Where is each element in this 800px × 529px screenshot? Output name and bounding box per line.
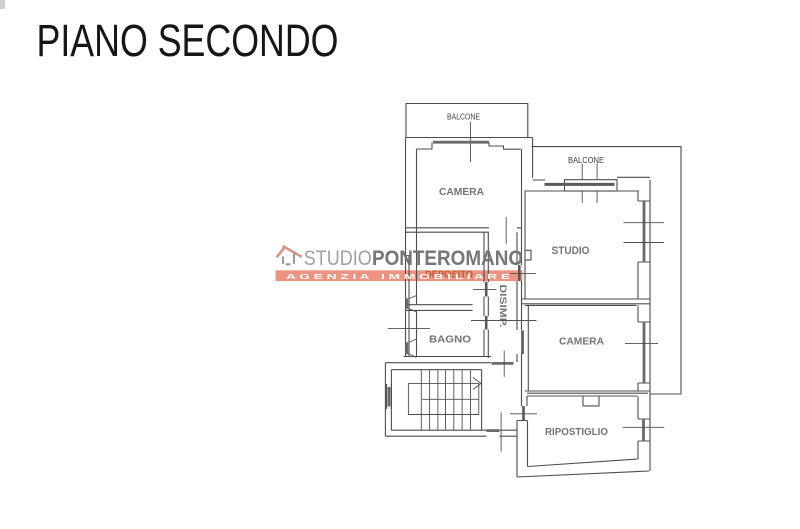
svg-text:CAMERA: CAMERA xyxy=(439,186,484,198)
svg-text:BALCONE: BALCONE xyxy=(568,156,604,165)
svg-text:A G E N Z I A I M M O B I L: A G E N Z I A I M M O B I L I A R E xyxy=(286,272,510,281)
svg-text:PIANO SECONDO: PIANO SECONDO xyxy=(37,15,339,66)
svg-text:STUDIO: STUDIO xyxy=(552,245,590,257)
svg-text:CAMERA: CAMERA xyxy=(559,336,604,348)
svg-text:BALCONE: BALCONE xyxy=(447,113,480,122)
svg-text:BAGNO: BAGNO xyxy=(429,334,471,346)
svg-text:DISIMP.: DISIMP. xyxy=(498,285,508,328)
svg-text:STUDIO: STUDIO xyxy=(304,247,372,270)
svg-text:PONTEROMANO: PONTEROMANO xyxy=(372,247,523,270)
svg-text:RIPOSTIGLIO: RIPOSTIGLIO xyxy=(545,426,608,438)
